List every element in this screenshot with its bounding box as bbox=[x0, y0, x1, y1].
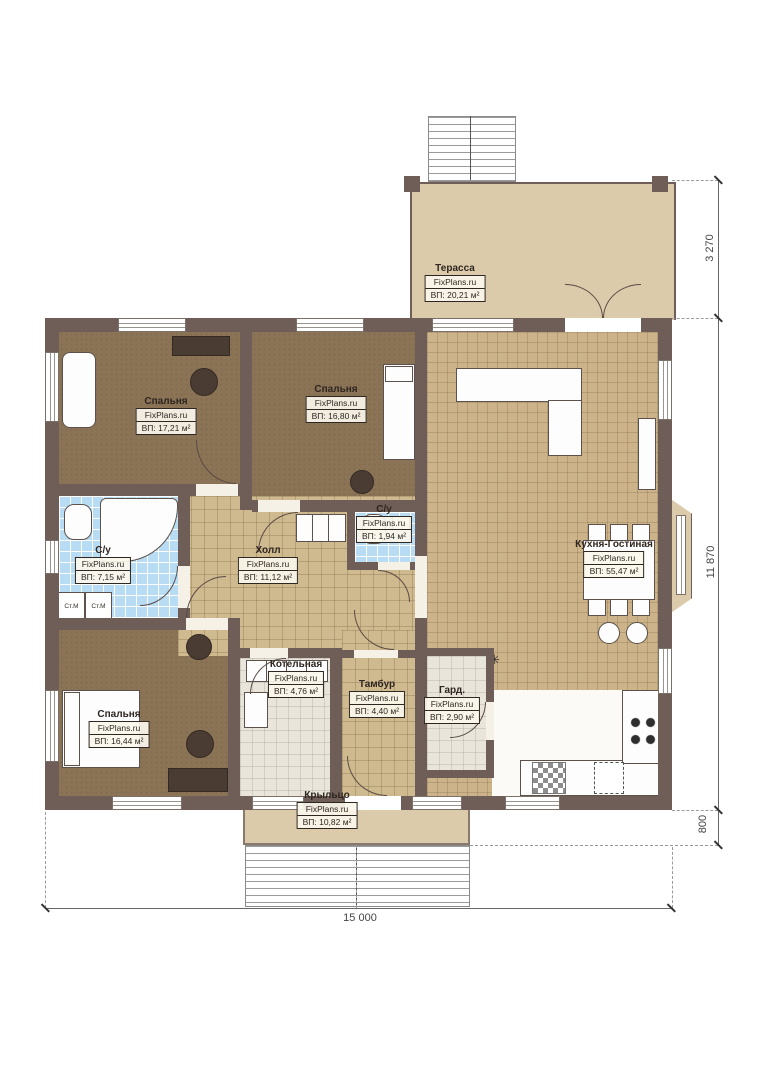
wall-wardrobe-top bbox=[427, 648, 492, 656]
brand: FixPlans.ru bbox=[357, 517, 411, 530]
room-name: Спальня bbox=[136, 396, 197, 407]
brand: FixPlans.ru bbox=[426, 276, 485, 289]
stove-burners bbox=[628, 714, 658, 748]
extension-line bbox=[672, 810, 718, 811]
brand: FixPlans.ru bbox=[269, 672, 323, 685]
window bbox=[45, 352, 59, 422]
wall-boiler-tambour bbox=[330, 648, 342, 796]
pillow bbox=[64, 692, 80, 766]
terrace-stairs bbox=[428, 116, 516, 182]
window bbox=[505, 796, 560, 810]
room-label-hall: Холл FixPlans.ruВП: 11,12 м² bbox=[238, 545, 298, 585]
brand: FixPlans.ru bbox=[76, 558, 130, 571]
pillow bbox=[385, 366, 413, 382]
chair bbox=[632, 599, 650, 616]
door-opening-terrace bbox=[565, 318, 641, 332]
round-table bbox=[186, 730, 214, 758]
room-area: ВП: 4,40 м² bbox=[350, 705, 404, 717]
room-name: Спальня bbox=[306, 384, 367, 395]
window bbox=[412, 796, 462, 810]
brand: FixPlans.ru bbox=[585, 552, 644, 565]
room-label-wardrobe: Гард. FixPlans.ruВП: 2,90 м² bbox=[424, 685, 480, 725]
brand: FixPlans.ru bbox=[350, 692, 404, 705]
room-name: С/у bbox=[356, 504, 412, 515]
room-label-terrace: Терасса FixPlans.ruВП: 20,21 м² bbox=[425, 263, 486, 303]
wardrobe-cabinet bbox=[172, 336, 230, 356]
door-opening bbox=[250, 648, 288, 658]
dim-porch-depth: 800 bbox=[697, 799, 709, 849]
dim-house-width: 15 000 bbox=[300, 912, 420, 924]
sofa bbox=[456, 368, 582, 402]
washer-label: Ст.М bbox=[64, 603, 78, 610]
sofa bbox=[548, 400, 582, 456]
room-label-bedroom3: Спальня FixPlans.ruВП: 16,44 м² bbox=[89, 709, 150, 749]
wall-bed3-right bbox=[228, 630, 240, 796]
chair bbox=[610, 599, 628, 616]
hall-closet bbox=[296, 514, 346, 542]
bay-window-glass bbox=[676, 515, 686, 595]
floor-plan: Ст.М Ст.М ✳ Терасса FixPlans.ruВП: 20,21… bbox=[0, 0, 763, 1080]
door-opening bbox=[486, 702, 494, 740]
brand: FixPlans.ru bbox=[298, 803, 357, 816]
room-area: ВП: 11,12 м² bbox=[239, 571, 297, 583]
window bbox=[658, 648, 672, 694]
room-label-bathroom: С/у FixPlans.ruВП: 7,15 м² bbox=[75, 545, 131, 585]
window bbox=[45, 690, 59, 762]
room-label-porch: Крыльцо FixPlans.ruВП: 10,82 м² bbox=[297, 790, 358, 830]
room-name: Тамбур bbox=[349, 679, 405, 690]
door-opening bbox=[354, 650, 398, 658]
extension-line bbox=[672, 847, 673, 908]
room-name: Крыльцо bbox=[297, 790, 358, 801]
room-name: Кухня-Гостиная bbox=[575, 539, 653, 550]
room-area: ВП: 4,76 м² bbox=[269, 685, 323, 697]
door-opening bbox=[415, 556, 427, 618]
window bbox=[118, 318, 186, 332]
room-label-kitchen: Кухня-Гостиная FixPlans.ruВП: 55,47 м² bbox=[575, 539, 653, 579]
porch-stairs bbox=[245, 845, 470, 907]
dimension-line-right bbox=[718, 180, 719, 845]
room-area: ВП: 2,90 м² bbox=[425, 711, 479, 723]
washing-machine: Ст.М bbox=[85, 592, 112, 620]
room-label-wc-small: С/у FixPlans.ruВП: 1,94 м² bbox=[356, 504, 412, 544]
chair bbox=[588, 599, 606, 616]
round-table bbox=[186, 634, 212, 660]
brand: FixPlans.ru bbox=[307, 397, 366, 410]
terrace-post bbox=[652, 176, 668, 192]
room-name: Холл bbox=[238, 545, 298, 556]
room-area: ВП: 17,21 м² bbox=[137, 422, 196, 434]
room-area: ВП: 1,94 м² bbox=[357, 530, 411, 542]
extension-line bbox=[356, 845, 357, 908]
brand: FixPlans.ru bbox=[239, 558, 297, 571]
room-name: Гард. bbox=[424, 685, 480, 696]
terrace-post bbox=[404, 176, 420, 192]
dim-terrace-depth: 3 270 bbox=[704, 218, 716, 278]
sofa bbox=[62, 352, 96, 428]
door-opening bbox=[258, 500, 300, 512]
room-area: ВП: 7,15 м² bbox=[76, 571, 130, 583]
wardrobe-cabinet bbox=[168, 768, 228, 792]
window bbox=[112, 796, 182, 810]
room-name: Спальня bbox=[89, 709, 150, 720]
floor-mat bbox=[532, 762, 566, 794]
extension-line bbox=[45, 812, 46, 908]
tv-stand bbox=[638, 418, 656, 490]
wall-bed1-bed2 bbox=[240, 332, 252, 510]
brand: FixPlans.ru bbox=[90, 722, 149, 735]
window bbox=[296, 318, 364, 332]
dim-house-depth: 11 870 bbox=[705, 527, 717, 597]
door-opening bbox=[196, 484, 238, 496]
extension-line bbox=[470, 845, 718, 846]
room-area: ВП: 16,80 м² bbox=[307, 410, 366, 422]
door-opening bbox=[186, 618, 228, 630]
room-area: ВП: 10,82 м² bbox=[298, 816, 357, 828]
room-name: Котельная bbox=[268, 659, 324, 670]
room-area: ВП: 55,47 м² bbox=[585, 565, 644, 577]
extension-line bbox=[672, 180, 718, 181]
room-area: ВП: 16,44 м² bbox=[90, 735, 149, 747]
boiler-unit bbox=[244, 692, 268, 728]
wall-wardrobe-bottom bbox=[427, 770, 494, 778]
window bbox=[658, 360, 672, 420]
room-name: Терасса bbox=[425, 263, 486, 274]
toilet bbox=[64, 504, 92, 540]
window bbox=[432, 318, 514, 332]
room-name: С/у bbox=[75, 545, 131, 556]
room-area: ВП: 20,21 м² bbox=[426, 289, 485, 301]
round-table bbox=[350, 470, 374, 494]
room-label-bedroom1: Спальня FixPlans.ruВП: 17,21 м² bbox=[136, 396, 197, 436]
washer-label: Ст.М bbox=[91, 603, 105, 610]
room-label-bedroom2: Спальня FixPlans.ruВП: 16,80 м² bbox=[306, 384, 367, 424]
room-label-boiler: Котельная FixPlans.ruВП: 4,76 м² bbox=[268, 659, 324, 699]
washing-machine: Ст.М bbox=[58, 592, 85, 620]
stool bbox=[626, 622, 648, 644]
appliance-dashed bbox=[594, 762, 624, 794]
terrace-stairs-centerline bbox=[470, 116, 471, 180]
round-table bbox=[190, 368, 218, 396]
brand: FixPlans.ru bbox=[137, 409, 196, 422]
room-label-tambour: Тамбур FixPlans.ruВП: 4,40 м² bbox=[349, 679, 405, 719]
brand: FixPlans.ru bbox=[425, 698, 479, 711]
window bbox=[45, 540, 59, 574]
dimension-line-bottom bbox=[45, 908, 672, 909]
door-opening bbox=[378, 562, 410, 570]
extension-line bbox=[672, 318, 718, 319]
stool bbox=[598, 622, 620, 644]
